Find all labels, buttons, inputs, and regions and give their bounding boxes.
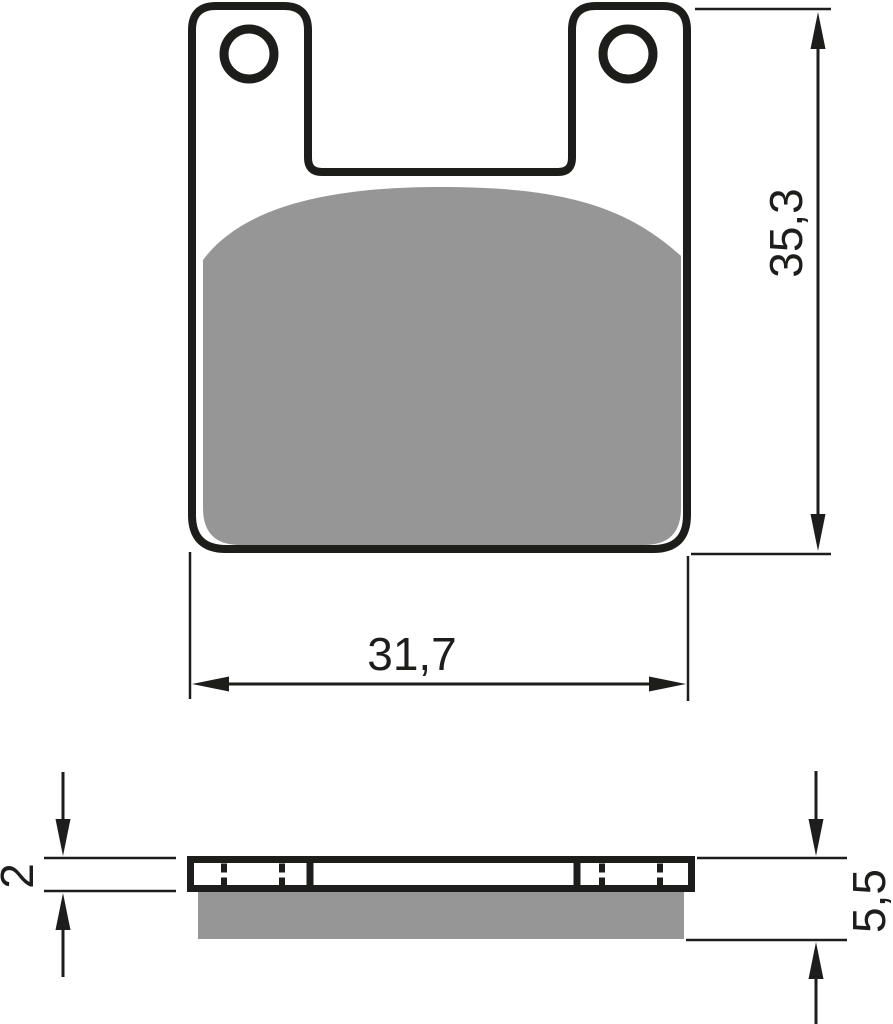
mounting-hole-left-icon xyxy=(224,29,274,79)
width-dimension-label: 31,7 xyxy=(367,628,457,680)
dimension-total-thickness: 5,5 xyxy=(686,771,893,1024)
dimension-height: 35,3 xyxy=(691,9,831,554)
friction-material xyxy=(203,187,681,545)
width-arrow-left-icon xyxy=(192,677,229,692)
front-view xyxy=(192,6,687,549)
backplate-dimension-label: 2 xyxy=(0,863,43,889)
section-backplate xyxy=(191,860,692,889)
backplate-arrow-down-icon xyxy=(56,819,71,856)
backplate-arrow-up-icon xyxy=(56,893,71,930)
section-friction-material xyxy=(198,892,684,939)
mounting-hole-right-icon xyxy=(603,29,653,79)
technical-drawing: 35,3 31,7 xyxy=(0,0,893,1024)
height-arrow-up-icon xyxy=(811,12,826,49)
drawing-svg: 35,3 31,7 xyxy=(0,0,893,1024)
dimension-width: 31,7 xyxy=(190,552,688,701)
width-arrow-right-icon xyxy=(649,677,686,692)
total-arrow-up-icon xyxy=(809,942,824,979)
dimension-backplate-thickness: 2 xyxy=(0,772,176,977)
section-view xyxy=(191,856,692,939)
height-arrow-down-icon xyxy=(811,514,826,551)
total-arrow-down-icon xyxy=(809,819,824,856)
total-dimension-label: 5,5 xyxy=(843,869,893,933)
height-dimension-label: 35,3 xyxy=(760,188,812,278)
